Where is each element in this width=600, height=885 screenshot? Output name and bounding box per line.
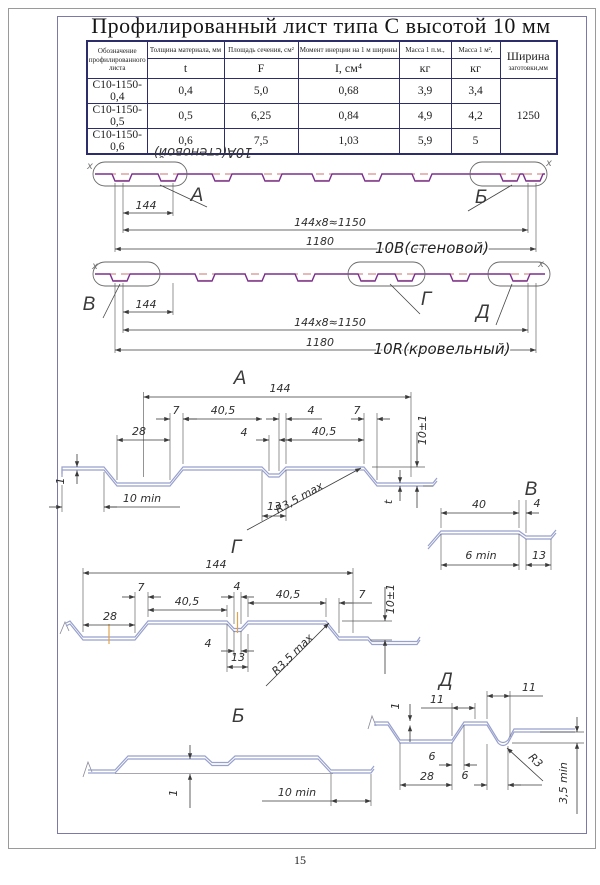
section-v-profile [428, 530, 556, 546]
roof-profile-view: х х В Г Д 144 144х8≈1150 1180 10R(кровел… [83, 259, 550, 358]
detail-label-g: Г [421, 289, 433, 310]
dim-label: 6 min [465, 549, 496, 562]
dim-label: 144 [206, 558, 227, 571]
dim-label: 13 [532, 549, 546, 562]
dim-label: 4 [241, 426, 248, 439]
dim-label: 7 [173, 404, 180, 417]
section-title: Б [232, 706, 244, 727]
dim-label: 6 [429, 750, 436, 763]
roof-profile-name: 10R(кровельный) [374, 340, 511, 358]
detail-label-b: Б [475, 187, 487, 208]
axis-mark-right: х [545, 158, 552, 169]
dim-label: 1180 [306, 235, 334, 248]
detail-label-a: А [190, 185, 204, 206]
dim-label: 144 [270, 382, 291, 395]
dim-label: 1 [389, 703, 402, 710]
drawing-sheet: Профилированный лист типа С высотой 10 м… [0, 0, 600, 885]
dim-label: 28 [420, 770, 434, 783]
section-g-dimensions: 144 7 40,5 4 40,5 7 [83, 558, 397, 686]
dim-label: 11 [430, 693, 444, 706]
dim-label: 13 [231, 651, 245, 664]
dim-label: 7 [138, 581, 145, 594]
dim-label: 1 [167, 790, 180, 797]
dim-label: 40,5 [175, 595, 200, 608]
axis-mark-left: х [86, 161, 93, 172]
section-title: Д [437, 670, 452, 691]
section-a-dimensions: 144 7 40,5 4 7 28 [49, 382, 433, 530]
flipped-wall-label: 10А(стеновой) [154, 144, 253, 159]
dim-label: 10±1 [384, 584, 397, 614]
section-b: Б 1 10 min [83, 706, 374, 808]
dim-label: 4 [234, 580, 241, 593]
dim-label: 28 [103, 610, 117, 623]
dim-label: 144х8≈1150 [294, 216, 366, 229]
dim-label: 40,5 [276, 588, 301, 601]
dim-label: 7 [354, 404, 361, 417]
section-b-dimensions: 1 10 min [167, 745, 371, 808]
dim-label: 144 [136, 199, 157, 212]
section-d: Д 1 11 11 6 28 [368, 670, 584, 814]
section-v: В 40 4 6 min 13 [428, 479, 556, 570]
dim-label: 144х8≈1150 [294, 316, 366, 329]
page-number: 15 [0, 853, 600, 868]
section-a: А 144 7 40,5 4 7 [49, 368, 437, 530]
section-title: Г [231, 537, 243, 558]
dim-label: 4 [205, 637, 212, 650]
dim-label: 28 [132, 425, 146, 438]
dim-label: 40,5 [211, 404, 236, 417]
dim-label: 4 [534, 497, 541, 510]
roof-profile-outline [95, 274, 545, 281]
dim-label: t [382, 499, 395, 504]
dim-label: 1180 [306, 336, 334, 349]
dim-label: R3,5 max [273, 479, 326, 516]
dim-label: 10 min [123, 492, 161, 505]
dim-label: 1 [54, 478, 67, 485]
dim-label: 40,5 [312, 425, 337, 438]
dim-label: 11 [522, 681, 536, 694]
dim-label: 40 [472, 498, 486, 511]
dim-label: 10±1 [416, 415, 429, 445]
dim-label: 4 [308, 404, 315, 417]
wall-profile-name: 10В(стеновой) [375, 239, 489, 257]
dim-label: 10 min [278, 786, 316, 799]
roof-dimensions: 144 144х8≈1150 1180 10R(кровельный) [115, 283, 536, 358]
dim-label: 144 [136, 298, 157, 311]
dim-label: 6 [462, 769, 469, 782]
dim-label: R3,5 max [269, 631, 316, 678]
section-d-dimensions: 1 11 11 6 28 6 [389, 681, 584, 814]
section-g: Г 144 7 40,5 4 [60, 537, 420, 686]
dim-label: 7 [359, 588, 366, 601]
wall-profile-view: х х 10А(стеновой) А Б 144 144х8≈1150 118… [86, 144, 552, 257]
wall-dimensions: 144 144х8≈1150 1180 10В(стеновой) [115, 183, 536, 257]
section-g-profile [66, 621, 420, 642]
dim-label: 3,5 min [557, 762, 570, 804]
detail-label-v: В [83, 294, 96, 315]
axis-mark-left: х [91, 261, 98, 272]
section-title: А [233, 368, 247, 389]
detail-label-d: Д [474, 302, 489, 323]
drawing-canvas: х х 10А(стеновой) А Б 144 144х8≈1150 118… [0, 0, 600, 885]
axis-mark-right: х [537, 259, 544, 270]
